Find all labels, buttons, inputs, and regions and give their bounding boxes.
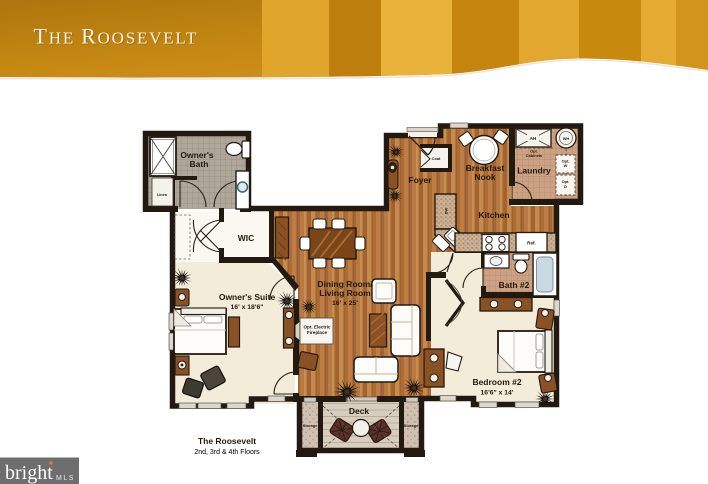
svg-text:Bath #2: Bath #2 [499, 280, 530, 290]
svg-text:Deck: Deck [349, 406, 370, 416]
svg-text:16'6" x 14': 16'6" x 14' [481, 390, 514, 397]
svg-text:Nook: Nook [474, 172, 496, 182]
svg-text:D: D [564, 184, 567, 189]
svg-text:Laundry: Laundry [517, 166, 551, 176]
svg-text:WH: WH [563, 136, 570, 141]
svg-text:16' x 18'6": 16' x 18'6" [231, 304, 264, 311]
svg-text:AH: AH [530, 136, 537, 141]
svg-text:Bath: Bath [190, 159, 209, 169]
svg-text:Foyer: Foyer [408, 175, 432, 185]
svg-text:Linen: Linen [157, 192, 168, 197]
svg-text:Owner's Suite: Owner's Suite [219, 292, 276, 302]
svg-text:16' x 25': 16' x 25' [332, 300, 358, 307]
svg-text:Coat: Coat [432, 156, 441, 161]
svg-text:Fireplace: Fireplace [307, 330, 328, 335]
svg-text:Storage: Storage [404, 423, 419, 428]
svg-text:MLS: MLS [56, 475, 75, 482]
svg-text:DW: DW [444, 207, 449, 214]
svg-text:Living Room: Living Room [319, 288, 371, 298]
svg-text:W: W [564, 163, 568, 168]
svg-text:WIC: WIC [238, 233, 255, 243]
svg-text:Ref.: Ref. [527, 241, 536, 246]
svg-text:The Roosevelt: The Roosevelt [198, 436, 256, 446]
svg-text:bright: bright [5, 462, 53, 484]
svg-text:2nd, 3rd & 4th Floors: 2nd, 3rd & 4th Floors [194, 449, 260, 456]
svg-text:Cabinets: Cabinets [526, 153, 542, 158]
svg-text:Kitchen: Kitchen [478, 210, 509, 220]
svg-text:Opt. Electric: Opt. Electric [303, 325, 331, 330]
svg-text:Bedroom #2: Bedroom #2 [472, 377, 521, 387]
svg-text:Storage: Storage [303, 423, 318, 428]
